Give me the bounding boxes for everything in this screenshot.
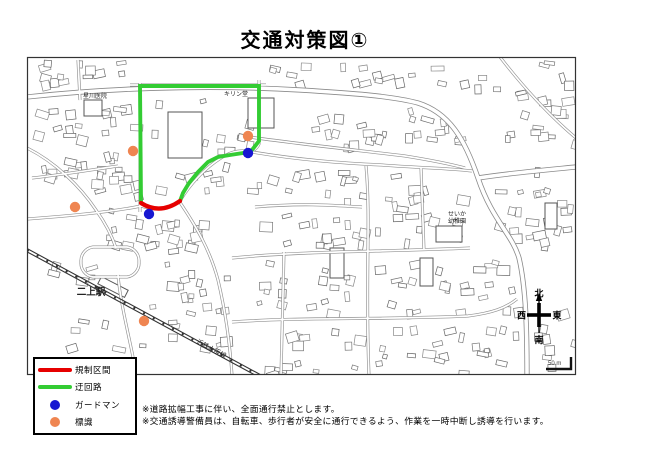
sign-dot-sample [50, 417, 60, 427]
legend-label: 迂回路 [75, 381, 102, 393]
sign-marker [70, 202, 80, 212]
place-label: キリン堂 [224, 90, 248, 98]
guard-marker [144, 209, 154, 219]
place-label: 星川医院 [83, 92, 107, 100]
place-label: 幼稚園 [448, 217, 466, 225]
note-line-2: ※交通誘導警備員は、自転車、歩行者が安全に通行できるよう、作業を一時中断し誘導を… [142, 416, 549, 428]
note-line-1: ※道路拡幅工事に伴い、全面通行禁止とします。 [142, 404, 549, 416]
legend-item-detour: 迂回路 [35, 379, 135, 395]
compass-label-east: 東 [552, 310, 561, 321]
notes: ※道路拡幅工事に伴い、全面通行禁止とします。 ※交通誘導警備員は、自転車、歩行者… [142, 404, 549, 427]
guard-dot-sample [50, 400, 60, 410]
sign-marker [139, 316, 149, 326]
traffic-plan-page: 交通対策図① 星川医院キリン堂せいか幼稚園二上駅近鉄大阪線北南西東50 m 規制… [0, 0, 650, 459]
legend-label: 規制区間 [75, 364, 111, 376]
legend-item-guard: ガードマン [35, 397, 135, 413]
restricted-line-sample [38, 368, 72, 372]
sign-marker [243, 131, 253, 141]
place-label: せいか [448, 211, 466, 218]
place-label: 二上駅 [77, 286, 106, 298]
legend-label: 標識 [75, 416, 93, 428]
legend: 規制区間 迂回路 ガードマン 標識 [33, 357, 137, 435]
legend-item-restricted: 規制区間 [35, 362, 135, 378]
sign-marker [128, 146, 138, 156]
compass-label-north: 北 [534, 288, 543, 299]
compass-label-west: 西 [517, 311, 526, 321]
guard-marker [243, 148, 253, 158]
scale-label: 50 m [548, 361, 561, 367]
detour-line-sample [38, 385, 72, 389]
legend-item-sign: 標識 [35, 414, 135, 430]
legend-label: ガードマン [75, 399, 120, 411]
compass-label-south: 南 [534, 334, 543, 345]
